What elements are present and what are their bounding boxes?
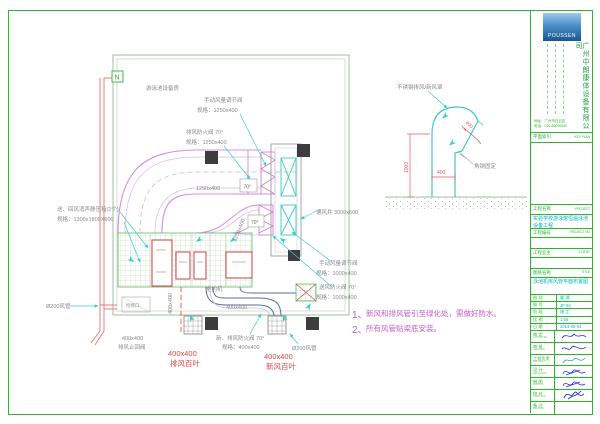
drawing-title-row: 泳池机房风管平面布置图 bbox=[531, 278, 592, 295]
approved-signature bbox=[555, 331, 592, 342]
check-valve-line1: 400x400 bbox=[122, 336, 143, 342]
designed-en: DESIGNED bbox=[533, 373, 554, 376]
keyplan-box bbox=[531, 143, 592, 205]
projno-value-row bbox=[531, 238, 592, 249]
projno-label: 工程编号 bbox=[533, 231, 551, 236]
keyplan-en: KEY PLAN bbox=[574, 136, 590, 139]
proj-manager-signature bbox=[555, 355, 592, 366]
row-date: 日 期 2013-09-04 bbox=[531, 324, 592, 331]
signature-scribble bbox=[560, 367, 588, 377]
fresh-air-damper-box bbox=[296, 284, 316, 301]
client-en: CLIENT bbox=[579, 251, 590, 254]
louver-fresh-line1: 400x400 bbox=[264, 352, 293, 361]
pipe-label-left: Ø200风管 bbox=[46, 302, 71, 310]
designed-signature bbox=[555, 366, 592, 377]
duct-dim-main: 1250x400 bbox=[196, 186, 220, 192]
vent-shaft bbox=[271, 144, 301, 256]
scale-label: 比 例 bbox=[531, 317, 557, 323]
stage-label: 阶 段 bbox=[531, 309, 557, 315]
company-contact: 地址：广州市白云区 电话：020-86000000 bbox=[534, 119, 576, 130]
detail-dim-opening: 400 bbox=[464, 120, 474, 130]
angle-steel-label: 角钢固定 bbox=[474, 162, 497, 170]
drawing-no-label: 图 号 bbox=[531, 302, 557, 308]
client-value-row bbox=[531, 258, 592, 269]
company-box: POUSSEN 广州中朗康体设备有限公司 地址：广州市白云区 电话：020-86… bbox=[531, 10, 592, 133]
signature-scribble bbox=[560, 379, 588, 389]
access-hatch-label: 检修口 bbox=[126, 302, 140, 309]
fresh-exhaust-damper-line1: 新、排风防火阀 70° bbox=[216, 334, 264, 342]
row-verified: 审 核VERIFIED bbox=[531, 343, 592, 355]
drawing-sheet: 游泳池设备房 N 手动风量调节阀 规格：1250x400 排风防火阀 70° 规… bbox=[0, 0, 600, 424]
project-label: 工程名称 bbox=[533, 207, 551, 212]
exhaust-fire-damper-line1: 排风防火阀 70° bbox=[186, 128, 223, 136]
drawn-signature bbox=[555, 378, 592, 389]
company-info-microtext bbox=[563, 44, 564, 114]
detail-dim-width: 400 bbox=[437, 170, 446, 176]
drawn-en: DRAWN bbox=[533, 384, 554, 387]
project-en: PROJECT bbox=[575, 208, 590, 211]
plenum-label-line1: 送、回风消声静压箱(2个) bbox=[57, 205, 119, 213]
plenum-label-line2: 规格：1300x1800X600 bbox=[57, 215, 114, 223]
shaft-label: 通风井 3000x600 bbox=[316, 208, 358, 216]
company-logo: POUSSEN bbox=[543, 13, 581, 41]
title-block: POUSSEN 广州中朗康体设备有限公司 地址：广州市白云区 电话：020-86… bbox=[530, 10, 592, 413]
louver-exhaust-line2: 排风百叶 bbox=[170, 358, 200, 368]
plan-drawing: 游泳池设备房 N 手动风量调节阀 规格：1250x400 排风防火阀 70° 规… bbox=[0, 0, 600, 424]
hood-detail bbox=[385, 107, 527, 209]
note-2-text: 所有风管贴梁底安装。 bbox=[366, 323, 441, 333]
pipe-label-bottom: Ø200风管 bbox=[292, 344, 317, 352]
keyplan-header: 平面索引 KEY PLAN bbox=[531, 133, 592, 143]
title-en: TITLE bbox=[581, 271, 590, 274]
duct-dim-400-vertical: 400x400 bbox=[168, 293, 174, 314]
logo-text: POUSSEN bbox=[548, 33, 576, 39]
company-name: 广州中朗康体设备有限公司 bbox=[575, 42, 589, 130]
signature-scribble bbox=[560, 390, 588, 401]
verified-en: VERIFIED bbox=[533, 349, 554, 352]
date-value: 2013-09-04 bbox=[557, 324, 581, 329]
deg70-tag-2: 70° bbox=[251, 220, 259, 226]
proj-manager-en: PROJECT bbox=[533, 361, 554, 364]
signature-scribble bbox=[560, 331, 588, 341]
category-label: 图 别 bbox=[531, 295, 557, 301]
duct-dim-400: 400x400 bbox=[226, 305, 247, 311]
exhaust-fire-damper-line2: 规格：1250x400 bbox=[186, 138, 227, 146]
projno-header: 工程编号 PROJECT NO bbox=[531, 229, 592, 238]
remark-signature bbox=[555, 402, 592, 414]
company-info-microtext bbox=[555, 44, 556, 114]
row-drawing-no: 图 号 JF-03 bbox=[531, 302, 592, 309]
row-designed: 设 计DESIGNED bbox=[531, 366, 592, 378]
remark-en: REMARK bbox=[533, 408, 554, 411]
company-info-microtext bbox=[547, 44, 548, 114]
stage-value: 施 工 bbox=[557, 309, 570, 315]
project-name-row: 实验学校游泳馆恒温泳池设备工程 bbox=[531, 215, 592, 229]
drawing-title: 泳池机房风管平面布置图 bbox=[531, 278, 592, 287]
row-approved: 审 定APPROVED bbox=[531, 331, 592, 343]
keyplan-label: 平面索引 bbox=[533, 135, 551, 140]
row-drawn: 制 图DRAWN bbox=[531, 378, 592, 390]
row-stage: 阶 段 施 工 bbox=[531, 309, 592, 316]
row-remark: 备 注REMARK bbox=[531, 402, 592, 414]
checked-en: CHECKED bbox=[533, 396, 554, 399]
title-header: 图纸名称 TITLE bbox=[531, 269, 592, 278]
silencer-symbols bbox=[281, 158, 296, 235]
manual-damper1-line1: 手动风量调节阀 bbox=[204, 96, 243, 104]
note-1-text: 新风和排风管引至绿化处，需做好防水。 bbox=[366, 308, 501, 318]
verified-signature bbox=[555, 343, 592, 354]
company-phone: 电话：020-86000000 bbox=[534, 124, 576, 129]
louver-fresh-line2: 新风百叶 bbox=[266, 361, 296, 371]
room-label: 游泳池设备房 bbox=[146, 84, 180, 92]
hood-label: 不锈钢排风/新风罩 bbox=[397, 83, 443, 91]
project-header: 工程名称 PROJECT bbox=[531, 205, 592, 215]
row-checked: 校 对CHECKED bbox=[531, 390, 592, 402]
title-label: 图纸名称 bbox=[533, 271, 551, 276]
manual-damper1-line2: 规格：1250x400 bbox=[197, 106, 238, 114]
manual-damper2-line2: 规格：1000x400 bbox=[316, 269, 357, 277]
projno-en: PROJECT NO bbox=[570, 231, 591, 234]
manual-damper2-line1: 手动风量调节阀 bbox=[319, 259, 358, 267]
approved-en: APPROVED bbox=[533, 337, 554, 340]
client-header: 工程业主 CLIENT bbox=[531, 249, 592, 258]
project-name: 实验学校游泳馆恒温泳池设备工程 bbox=[531, 215, 592, 229]
marker-label: N bbox=[115, 75, 120, 82]
detail-dim-height: 1000 bbox=[404, 162, 410, 173]
row-proj-manager: 工程负责PROJECT bbox=[531, 355, 592, 367]
supply-fire-damper-line1: 送风防火阀 70° bbox=[319, 283, 356, 291]
signature-scribble bbox=[560, 343, 588, 353]
louver-symbols bbox=[184, 316, 286, 334]
indoor-unit-label: 室内机 bbox=[206, 285, 223, 293]
supply-fire-damper-line2: 规格：1000x400 bbox=[316, 293, 357, 301]
row-category: 图 别 暖 通 bbox=[531, 295, 592, 302]
deg70-tag-1: 70° bbox=[244, 185, 252, 191]
check-valve-line2: 排风止回阀 bbox=[118, 343, 146, 351]
signature-scribble bbox=[560, 355, 588, 365]
checked-signature bbox=[555, 390, 592, 401]
row-scale: 比 例 1:50 bbox=[531, 317, 592, 324]
category-value: 暖 通 bbox=[557, 295, 570, 301]
louver-exhaust-line1: 400x400 bbox=[168, 349, 197, 358]
date-label: 日 期 bbox=[531, 324, 557, 330]
scale-value: 1:50 bbox=[557, 317, 568, 322]
fresh-exhaust-damper-line2: 规格：400x400 bbox=[222, 343, 260, 351]
drawing-no-value: JF-03 bbox=[557, 303, 571, 308]
client-label: 工程业主 bbox=[533, 251, 551, 256]
